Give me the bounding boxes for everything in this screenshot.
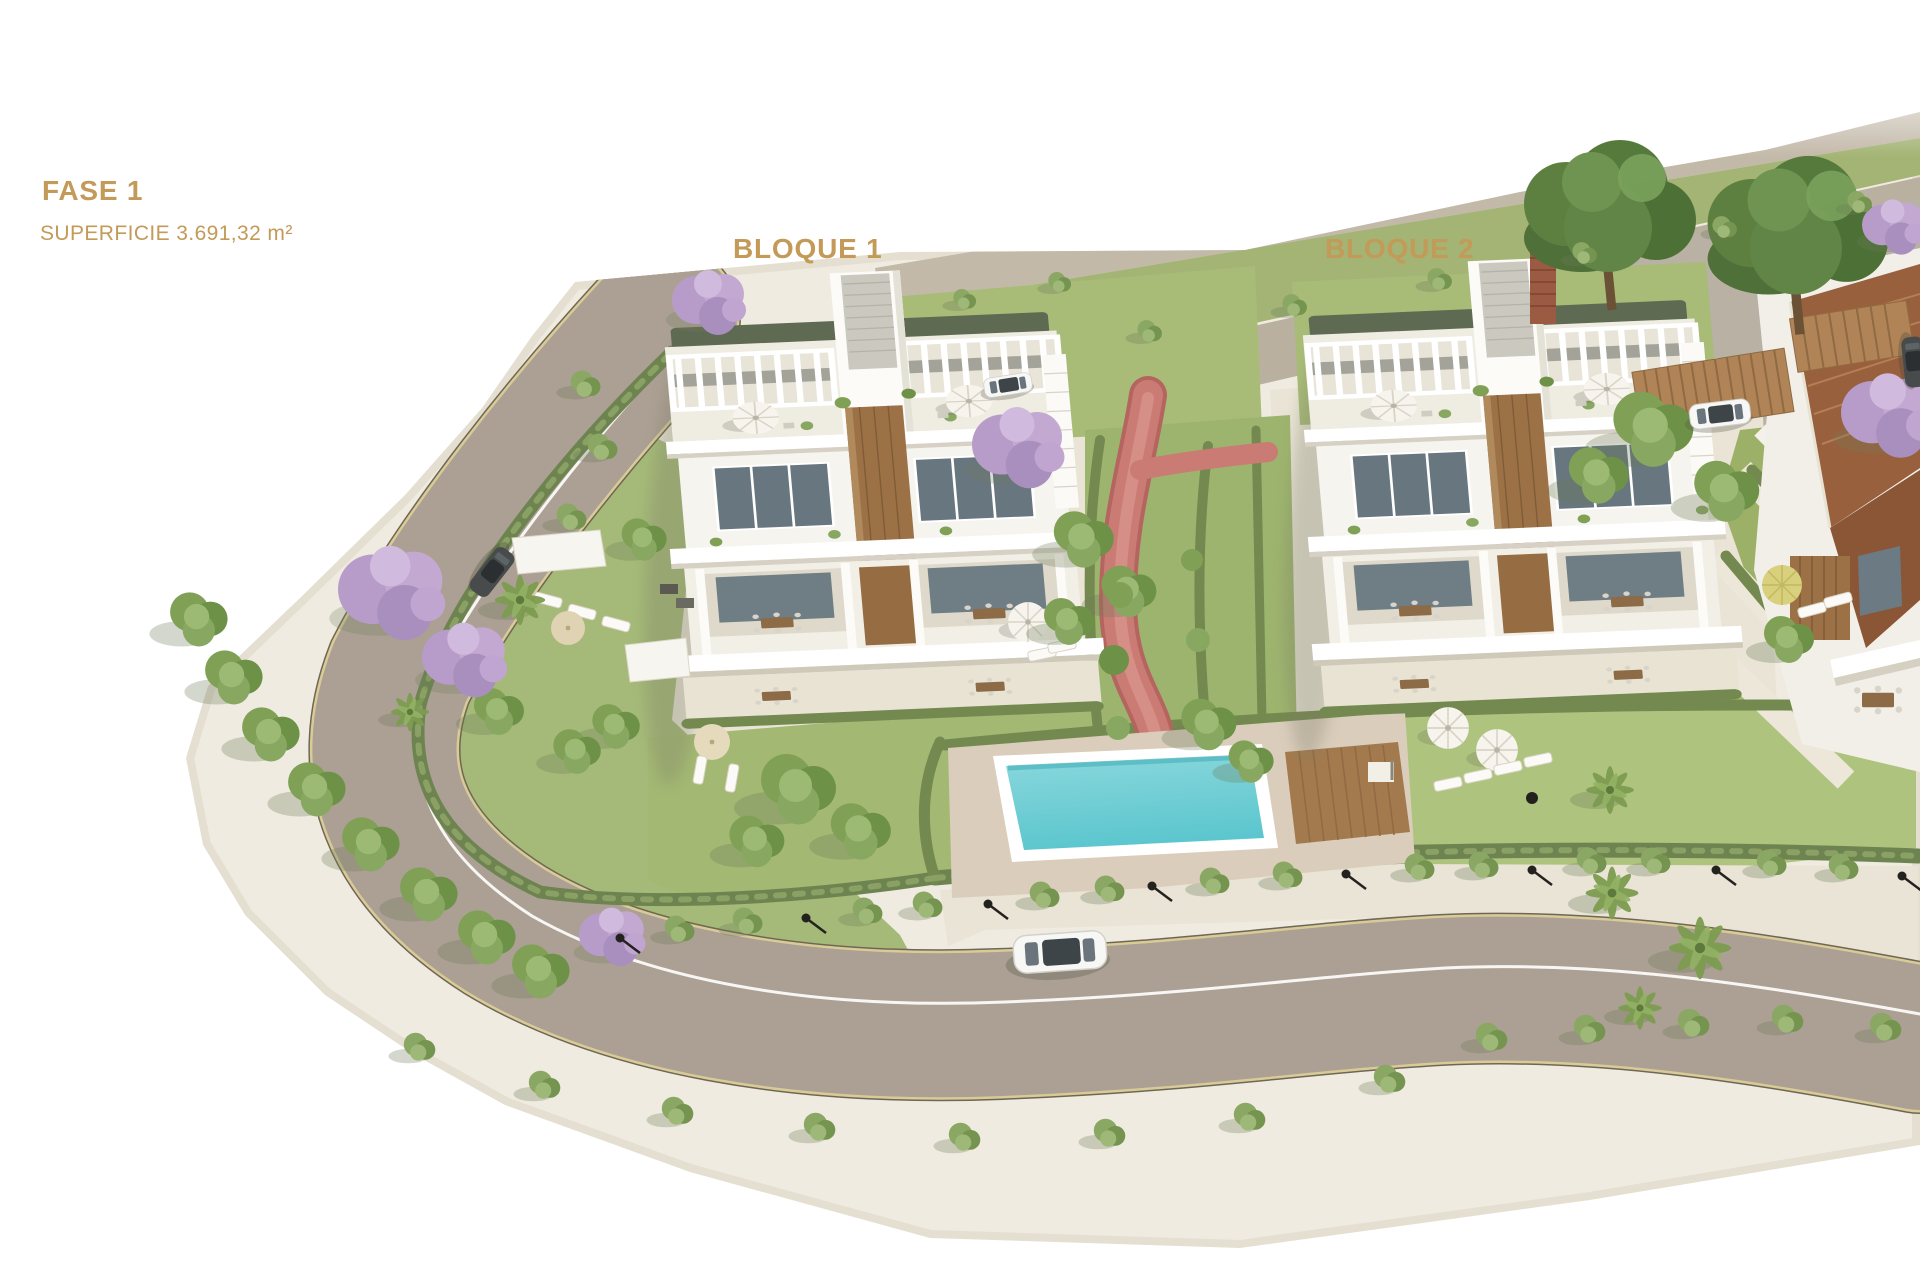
render-page: FASE 1 SUPERFICIE 3.691,32 m² BLOQUE 1 B… xyxy=(0,0,1920,1280)
site-plan-render: FASE 1 SUPERFICIE 3.691,32 m² BLOQUE 1 B… xyxy=(0,0,1920,1280)
bloque-1-label: BLOQUE 1 xyxy=(733,233,883,264)
path-shrub xyxy=(1181,549,1203,571)
tree xyxy=(149,592,227,646)
beige-umbrella xyxy=(551,611,585,645)
pool-shower-pad xyxy=(1368,762,1394,782)
path-shrub xyxy=(1107,582,1133,608)
garden-bench xyxy=(676,598,694,608)
block-2-building xyxy=(1279,251,1748,717)
path-shrub xyxy=(1099,645,1129,675)
path-shrub xyxy=(1186,628,1210,652)
garden-bench xyxy=(660,584,678,594)
shade-sail-2 xyxy=(625,638,690,682)
hedge-central-east xyxy=(1256,430,1262,720)
beige-umbrella xyxy=(694,724,730,760)
path-shrub xyxy=(1106,716,1130,740)
garden-light xyxy=(1526,792,1538,804)
shade-sail xyxy=(512,530,606,574)
surface-area-label: SUPERFICIE 3.691,32 m² xyxy=(40,222,293,245)
phase-label: FASE 1 xyxy=(42,175,143,206)
atmosphere-fade xyxy=(840,58,1920,158)
bloque-2-label: BLOQUE 2 xyxy=(1325,233,1475,264)
